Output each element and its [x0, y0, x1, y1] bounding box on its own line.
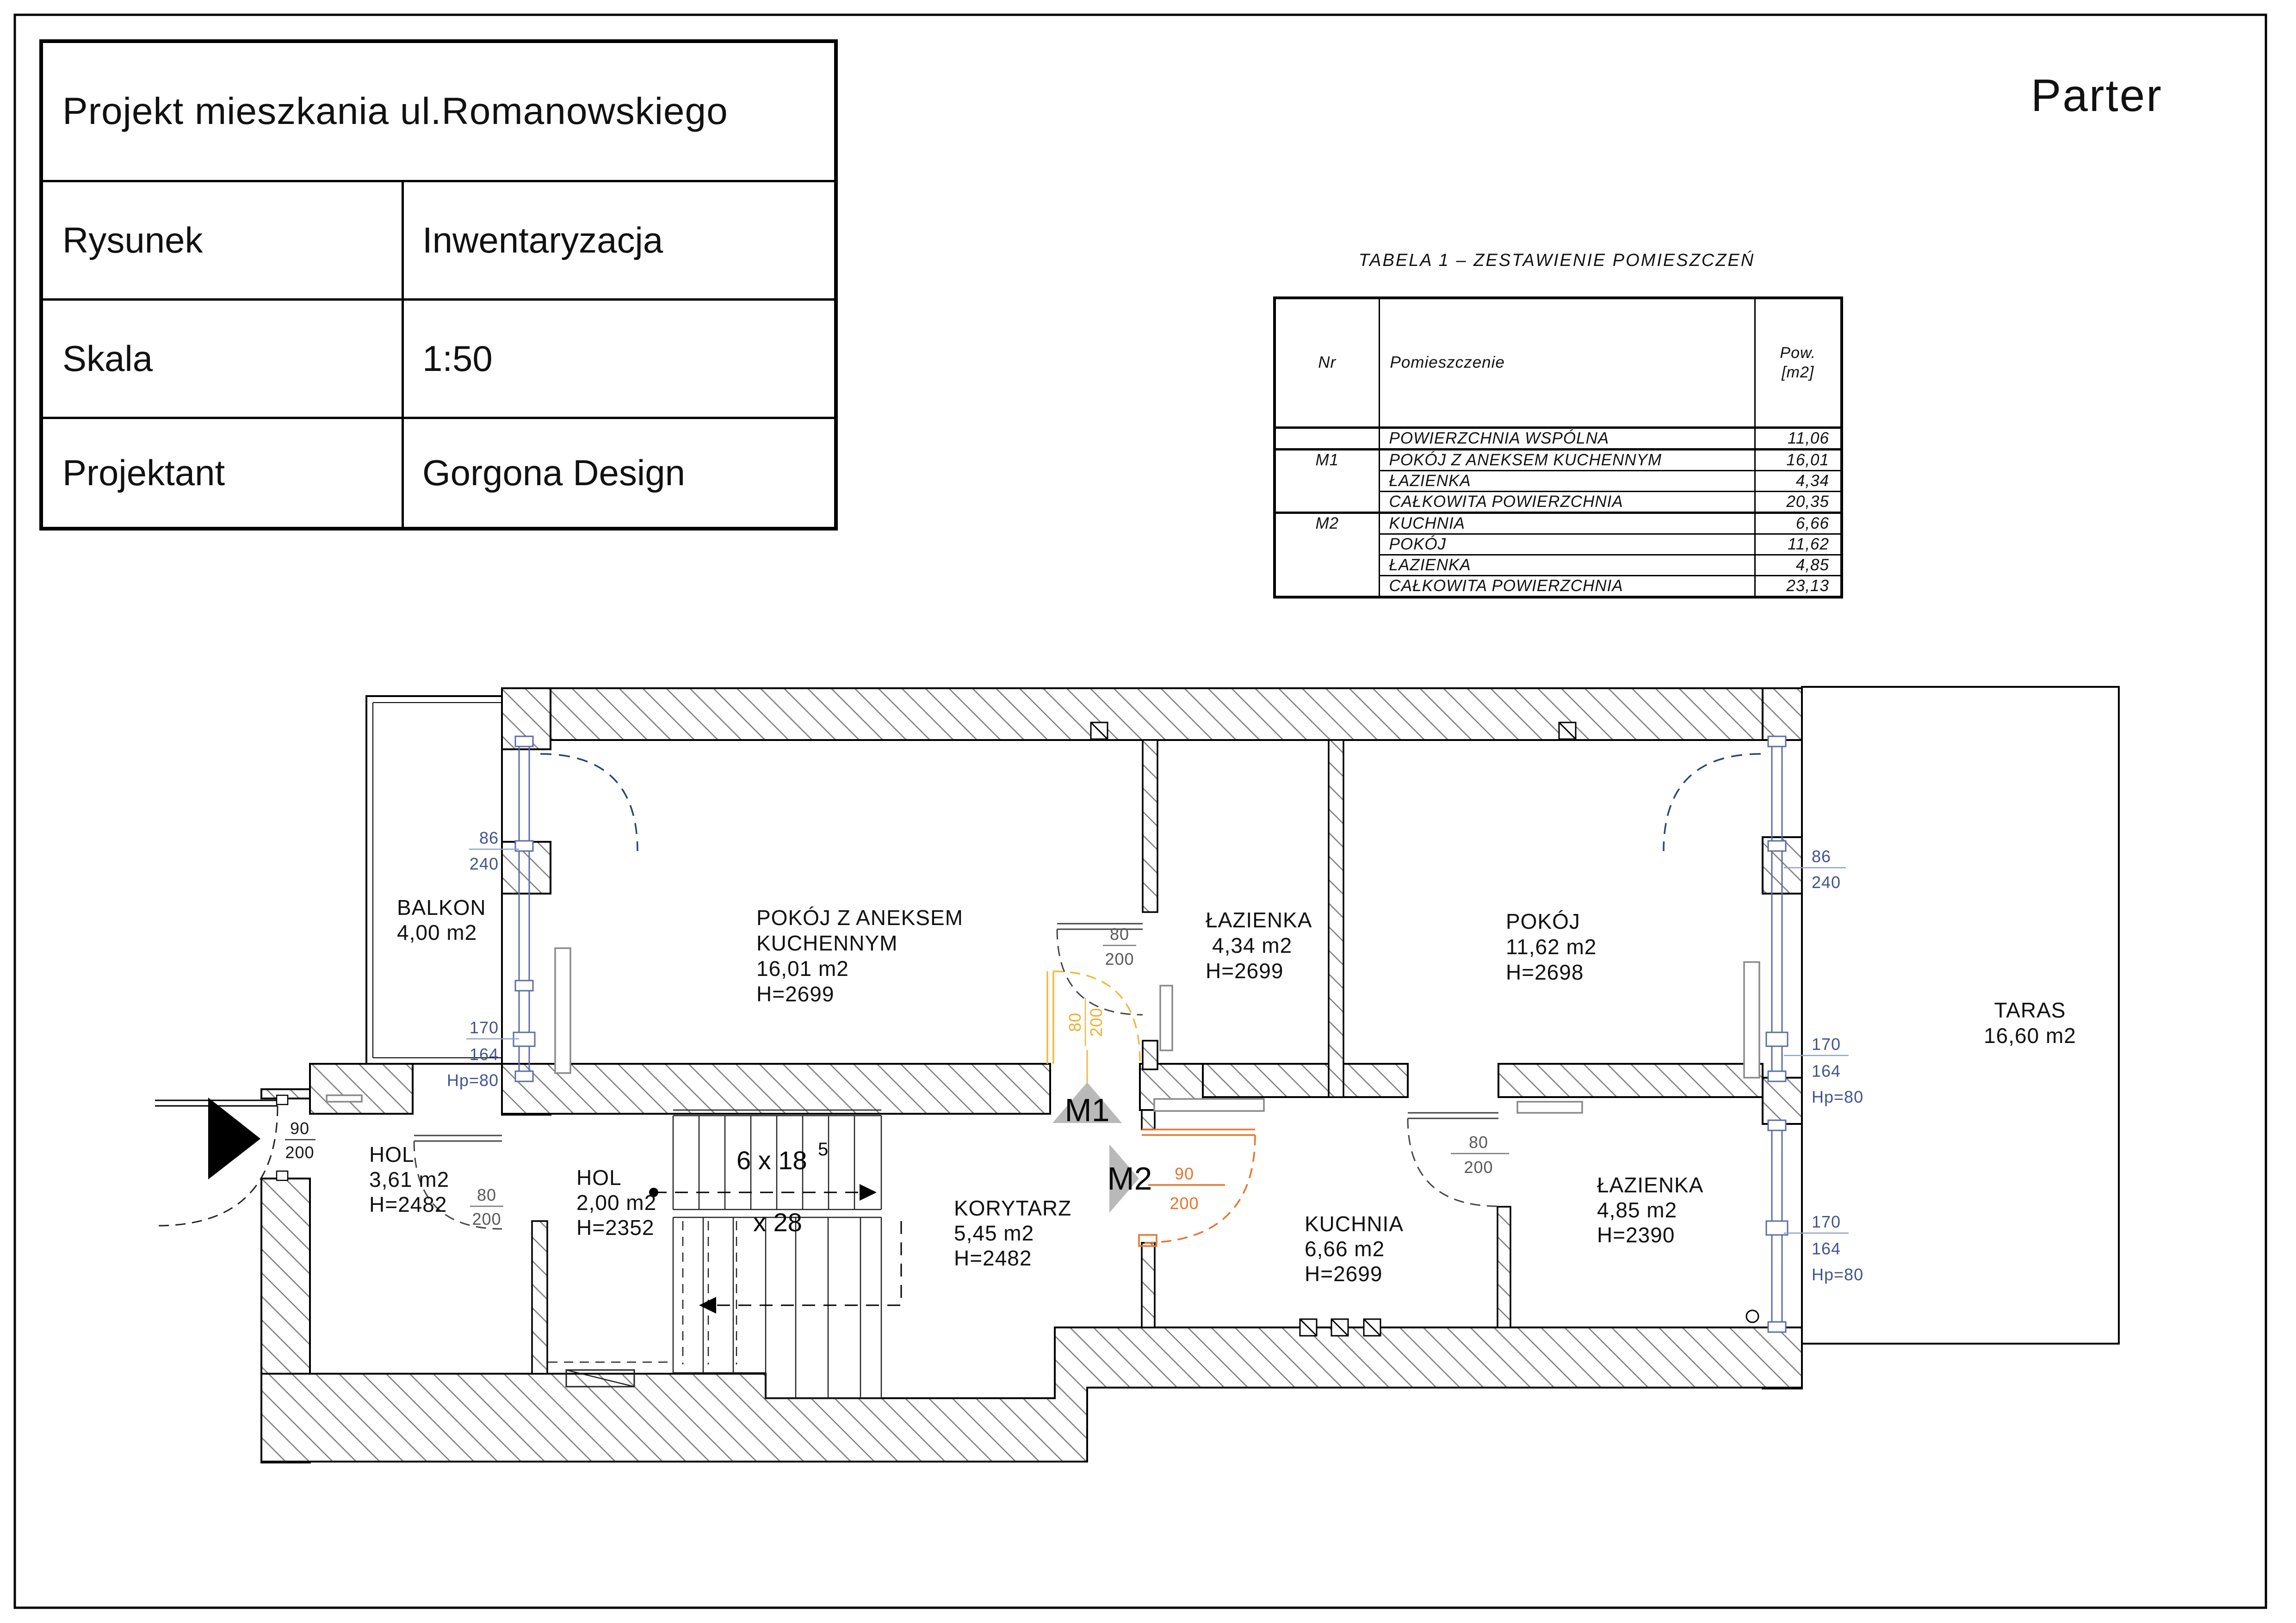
- m2-entry-door: [1139, 1129, 1255, 1246]
- cell-room: POKÓJ Z ANEKSEM KUCHENNYM: [1379, 449, 1755, 470]
- dim-m2-entry-door: 90 200: [1170, 1164, 1199, 1213]
- radiator-lazienka-m1: [1160, 986, 1172, 1050]
- header-area: Pow. [m2]: [1755, 298, 1842, 427]
- svg-text:KORYTARZ: KORYTARZ: [954, 1196, 1071, 1220]
- table-row: CAŁKOWITA POWIERZCHNIA 23,13: [1275, 575, 1842, 597]
- svg-text:164: 164: [1812, 1061, 1841, 1080]
- table-row: ŁAZIENKA 4,34: [1275, 470, 1842, 491]
- room-label-lazienka-m1: ŁAZIENKA 4,34 m2 H=2699: [1206, 908, 1312, 983]
- cell-area: 4,34: [1755, 470, 1842, 491]
- svg-text:80: 80: [1065, 1012, 1084, 1032]
- table-row: ŁAZIENKA 4,85: [1275, 555, 1842, 575]
- room-label-lazienka-m2: ŁAZIENKA 4,85 m2 H=2390: [1597, 1173, 1703, 1247]
- title-block-row-skala: Skala 1:50: [43, 301, 834, 419]
- svg-text:86: 86: [479, 828, 499, 847]
- header-nr: Nr: [1275, 298, 1379, 427]
- svg-text:164: 164: [470, 1045, 499, 1064]
- room-schedule: TABELA 1 – ZESTAWIENIE POMIESZCZEŃ Nr Po…: [1273, 251, 1840, 599]
- svg-text:H=2482: H=2482: [954, 1246, 1032, 1270]
- svg-text:200: 200: [1170, 1194, 1199, 1213]
- svg-text:11,62 m2: 11,62 m2: [1506, 935, 1597, 959]
- table-header-row: Nr Pomieszczenie Pow. [m2]: [1275, 298, 1842, 427]
- svg-text:POKÓJ: POKÓJ: [1506, 909, 1580, 933]
- header-area-line1: Pow.: [1756, 343, 1840, 363]
- stairs-riser-count: 6 x 18: [736, 1146, 807, 1175]
- svg-text:4,00 m2: 4,00 m2: [397, 920, 477, 944]
- svg-text:H=2699: H=2699: [1206, 959, 1283, 983]
- svg-text:200: 200: [285, 1143, 314, 1162]
- svg-text:TARAS: TARAS: [1994, 998, 2066, 1022]
- svg-text:H=2482: H=2482: [369, 1192, 447, 1216]
- room-schedule-table: Nr Pomieszczenie Pow. [m2] POWIERZCHNIA …: [1273, 296, 1843, 599]
- svg-text:POKÓJ Z ANEKSEM: POKÓJ Z ANEKSEM: [756, 906, 963, 930]
- svg-text:16,01 m2: 16,01 m2: [756, 957, 849, 981]
- svg-text:H=2390: H=2390: [1597, 1223, 1675, 1247]
- marker-m2-label: M2: [1107, 1160, 1152, 1197]
- room-schedule-title: TABELA 1 – ZESTAWIENIE POMIESZCZEŃ: [1273, 251, 1840, 271]
- room-label-hol-wejscie: HOL 3,61 m2 H=2482: [369, 1142, 449, 1216]
- room-label-korytarz: KORYTARZ 5,45 m2 H=2482: [954, 1196, 1071, 1270]
- walk-arrow-right-icon: [860, 1184, 877, 1201]
- dim-hol-door: 80 200: [470, 1185, 503, 1228]
- svg-text:KUCHENNYM: KUCHENNYM: [756, 931, 897, 955]
- cell-room: ŁAZIENKA: [1379, 555, 1755, 575]
- marker-m1: M1: [1052, 1082, 1122, 1128]
- radiator-pokoj-aneks: [555, 948, 570, 1073]
- floor-label: Parter: [2031, 69, 2163, 122]
- marker-m1-label: M1: [1064, 1092, 1109, 1128]
- svg-text:BALKON: BALKON: [397, 895, 486, 919]
- counter-kuchnia: [1154, 1099, 1264, 1111]
- svg-text:200: 200: [472, 1210, 501, 1228]
- cell-nr: [1275, 427, 1379, 449]
- row-label: Projektant: [43, 419, 404, 527]
- row-value: Inwentaryzacja: [404, 182, 834, 298]
- table-row: POWIERZCHNIA WSPÓLNA 11,06: [1275, 427, 1842, 449]
- svg-text:6,66 m2: 6,66 m2: [1305, 1237, 1385, 1261]
- stairs-annotation: 6 x 18 5 x 28: [736, 1139, 828, 1237]
- table-row: POKÓJ 11,62: [1275, 534, 1842, 555]
- stairs-riser-sup: 5: [818, 1139, 828, 1160]
- header-area-line2: [m2]: [1756, 363, 1840, 383]
- cell-area: 4,85: [1755, 555, 1842, 575]
- project-title: Projekt mieszkania ul.Romanowskiego: [43, 43, 834, 182]
- cell-nr: M2: [1275, 512, 1379, 534]
- walk-arrow-left-icon: [699, 1297, 716, 1314]
- svg-text:H=2699: H=2699: [756, 982, 834, 1006]
- title-block: Projekt mieszkania ul.Romanowskiego Rysu…: [39, 39, 838, 531]
- table-row: M1 POKÓJ Z ANEKSEM KUCHENNYM 16,01: [1275, 449, 1842, 470]
- svg-text:170: 170: [470, 1018, 499, 1037]
- cell-nr: [1275, 575, 1379, 597]
- dim-entrance-door: 90 200: [285, 1119, 316, 1162]
- svg-text:170: 170: [1812, 1035, 1841, 1054]
- svg-text:240: 240: [470, 854, 499, 873]
- cell-room: KUCHNIA: [1379, 512, 1755, 534]
- svg-text:ŁAZIENKA: ŁAZIENKA: [1206, 908, 1312, 932]
- room-label-kuchnia: KUCHNIA 6,66 m2 H=2699: [1305, 1212, 1404, 1286]
- stairs-walk-line: [649, 1184, 901, 1314]
- svg-text:80: 80: [1469, 1133, 1488, 1152]
- svg-text:Hp=80: Hp=80: [447, 1071, 499, 1090]
- entrance-arrow-icon: [208, 1098, 260, 1179]
- dim-window-right-bath: 170 164 Hp=80: [1784, 1212, 1863, 1284]
- cell-nr: [1275, 534, 1379, 555]
- room-label-hol-maly: HOL 2,00 m2 H=2352: [576, 1166, 656, 1240]
- cell-area: 20,35: [1755, 491, 1842, 512]
- room-label-pokoj: POKÓJ 11,62 m2 H=2698: [1506, 909, 1597, 984]
- cell-nr: [1275, 491, 1379, 512]
- cell-nr: M1: [1275, 449, 1379, 470]
- radiator-lazienka-m2: [1517, 1102, 1582, 1113]
- table-row: M2 KUCHNIA 6,66: [1275, 512, 1842, 534]
- title-block-row-rysunek: Rysunek Inwentaryzacja: [43, 182, 834, 301]
- room-label-pokoj-aneks: POKÓJ Z ANEKSEM KUCHENNYM 16,01 m2 H=269…: [756, 906, 963, 1006]
- dim-m1-bath-door: 80 200: [1103, 925, 1136, 969]
- svg-text:5,45 m2: 5,45 m2: [954, 1221, 1034, 1245]
- svg-text:164: 164: [1812, 1239, 1841, 1258]
- cell-room: POWIERZCHNIA WSPÓLNA: [1379, 427, 1755, 449]
- table-row: CAŁKOWITA POWIERZCHNIA 20,35: [1275, 491, 1842, 512]
- balcony-outline: [366, 696, 502, 1064]
- svg-text:H=2698: H=2698: [1506, 960, 1584, 984]
- svg-text:4,85 m2: 4,85 m2: [1597, 1198, 1677, 1222]
- svg-text:2,00 m2: 2,00 m2: [576, 1191, 656, 1215]
- cell-area: 16,01: [1755, 449, 1842, 470]
- svg-text:170: 170: [1812, 1212, 1841, 1231]
- radiator-pokoj: [1744, 962, 1759, 1078]
- stairs-tread: x 28: [753, 1208, 802, 1237]
- cell-nr: [1275, 555, 1379, 575]
- svg-text:H=2699: H=2699: [1305, 1262, 1382, 1286]
- terrace-outline: [1802, 687, 2119, 1344]
- drawing-sheet: 6 x 18 5 x 28 M1 M2 BALKON 4,00 m2 POKÓJ…: [0, 0, 2296, 1623]
- marker-m2: M2: [1107, 1144, 1152, 1213]
- svg-text:86: 86: [1812, 847, 1831, 866]
- row-value: Gorgona Design: [404, 419, 834, 527]
- cell-room: POKÓJ: [1379, 534, 1755, 555]
- svg-text:KUCHNIA: KUCHNIA: [1305, 1212, 1404, 1236]
- svg-text:ŁAZIENKA: ŁAZIENKA: [1597, 1173, 1703, 1197]
- drain-symbol: [1746, 1310, 1758, 1322]
- header-room: Pomieszczenie: [1379, 298, 1755, 427]
- title-block-row-projektant: Projektant Gorgona Design: [43, 419, 834, 527]
- row-label: Skala: [43, 301, 404, 417]
- room-label-balkon: BALKON 4,00 m2: [397, 895, 486, 944]
- svg-text:Hp=80: Hp=80: [1812, 1265, 1863, 1284]
- svg-text:H=2352: H=2352: [576, 1216, 654, 1240]
- cell-area: 11,62: [1755, 534, 1842, 555]
- svg-text:200: 200: [1464, 1158, 1493, 1177]
- svg-text:HOL: HOL: [369, 1142, 415, 1166]
- row-label: Rysunek: [43, 182, 404, 298]
- svg-text:Hp=80: Hp=80: [1812, 1087, 1863, 1106]
- svg-text:200: 200: [1087, 1007, 1106, 1037]
- dim-m1-entry-door: 80 200: [1065, 998, 1106, 1046]
- svg-text:4,34 m2: 4,34 m2: [1212, 933, 1292, 957]
- cell-nr: [1275, 470, 1379, 491]
- radiator-hol: [327, 1095, 362, 1102]
- cell-room: CAŁKOWITA POWIERZCHNIA: [1379, 575, 1755, 597]
- cell-room: CAŁKOWITA POWIERZCHNIA: [1379, 491, 1755, 512]
- stairs: [548, 1110, 881, 1398]
- svg-text:240: 240: [1812, 873, 1841, 892]
- svg-text:80: 80: [477, 1185, 496, 1204]
- svg-text:80: 80: [1110, 925, 1129, 944]
- svg-text:90: 90: [1175, 1164, 1194, 1183]
- cell-area: 23,13: [1755, 575, 1842, 597]
- cell-area: 11,06: [1755, 427, 1842, 449]
- dim-m2-bath-door: 80 200: [1451, 1133, 1509, 1177]
- svg-text:90: 90: [290, 1119, 309, 1138]
- svg-text:3,61 m2: 3,61 m2: [369, 1167, 449, 1191]
- svg-text:16,60 m2: 16,60 m2: [1984, 1024, 2076, 1048]
- room-label-taras: TARAS 16,60 m2: [1984, 998, 2076, 1048]
- svg-text:200: 200: [1105, 950, 1134, 969]
- row-value: 1:50: [404, 301, 834, 417]
- m1-bathroom-door: [1057, 924, 1143, 1015]
- cell-area: 6,66: [1755, 512, 1842, 534]
- svg-text:HOL: HOL: [576, 1166, 622, 1190]
- cell-room: ŁAZIENKA: [1379, 470, 1755, 491]
